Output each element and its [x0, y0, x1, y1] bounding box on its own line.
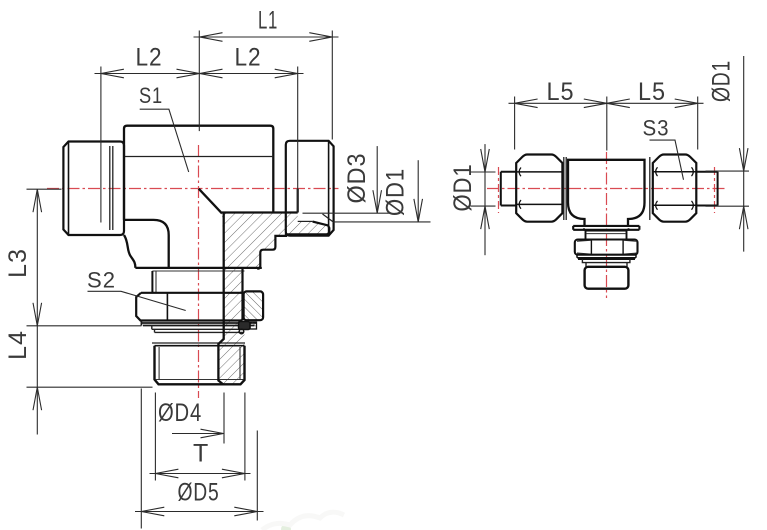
svg-text:L5: L5: [638, 78, 666, 106]
svg-text:L5: L5: [547, 78, 575, 106]
svg-text:S3: S3: [643, 116, 670, 141]
svg-text:L3: L3: [4, 248, 32, 278]
svg-text:ØD1: ØD1: [708, 60, 736, 102]
svg-text:ØD4: ØD4: [158, 399, 202, 427]
svg-text:ØD3: ØD3: [343, 153, 371, 204]
svg-text:ØD1: ØD1: [449, 164, 477, 212]
svg-text:T: T: [193, 440, 209, 468]
svg-text:ØD1: ØD1: [382, 168, 410, 216]
svg-text:L1: L1: [258, 7, 278, 35]
svg-text:L2: L2: [235, 44, 262, 72]
svg-text:S1: S1: [139, 83, 163, 108]
svg-text:L4: L4: [4, 330, 32, 360]
svg-text:L2: L2: [136, 44, 163, 72]
svg-text:S2: S2: [87, 268, 116, 293]
svg-text:ØD5: ØD5: [178, 479, 220, 507]
